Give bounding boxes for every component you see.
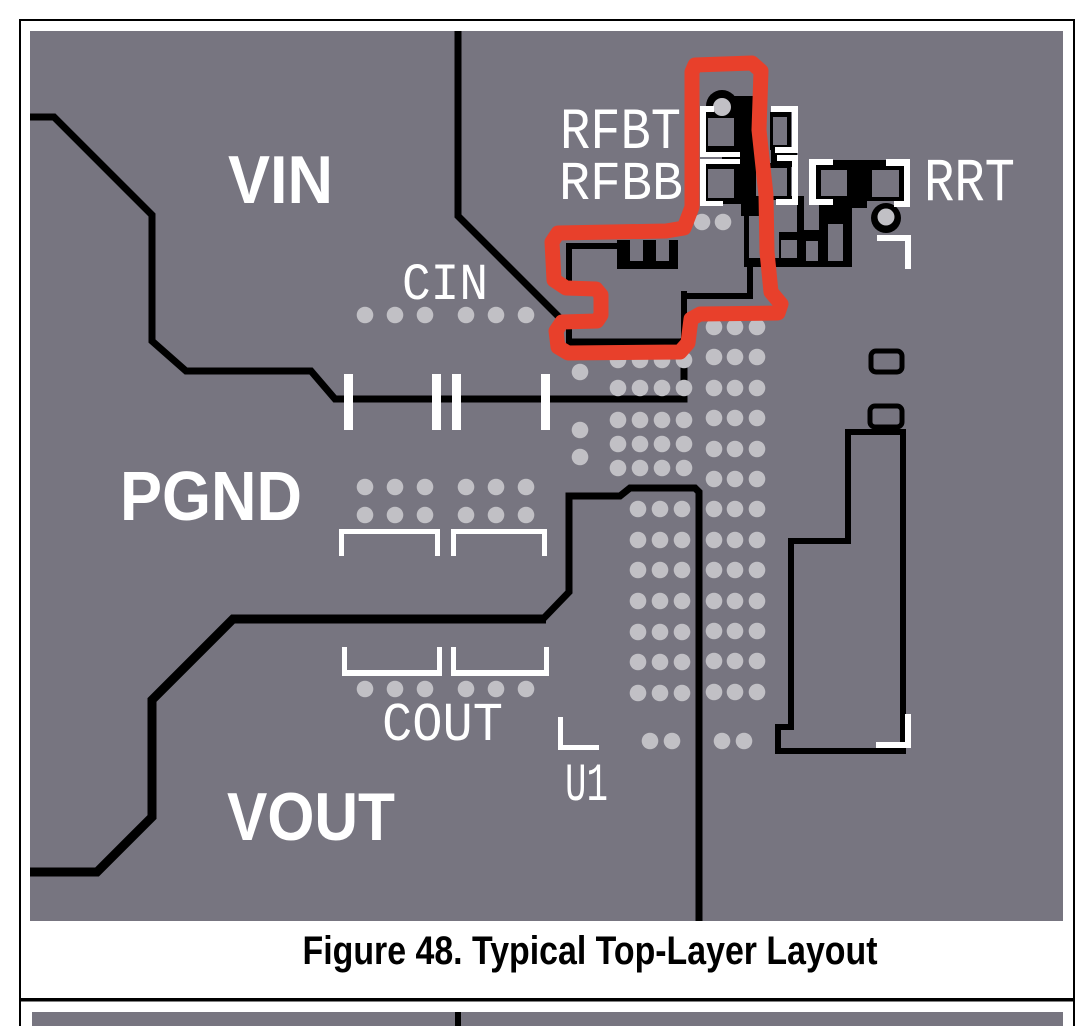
svg-text:RRT: RRT (924, 150, 1015, 219)
svg-text:RFBB: RFBB (559, 153, 683, 216)
svg-text:VIN: VIN (228, 142, 333, 218)
svg-text:PGND: PGND (120, 457, 302, 535)
svg-text:CIN: CIN (402, 256, 488, 315)
svg-text:COUT: COUT (382, 694, 503, 757)
svg-text:Figure 48. Typical Top-Layer L: Figure 48. Typical Top-Layer Layout (303, 929, 878, 973)
svg-text:VOUT: VOUT (227, 779, 395, 855)
svg-text:U1: U1 (565, 756, 608, 817)
